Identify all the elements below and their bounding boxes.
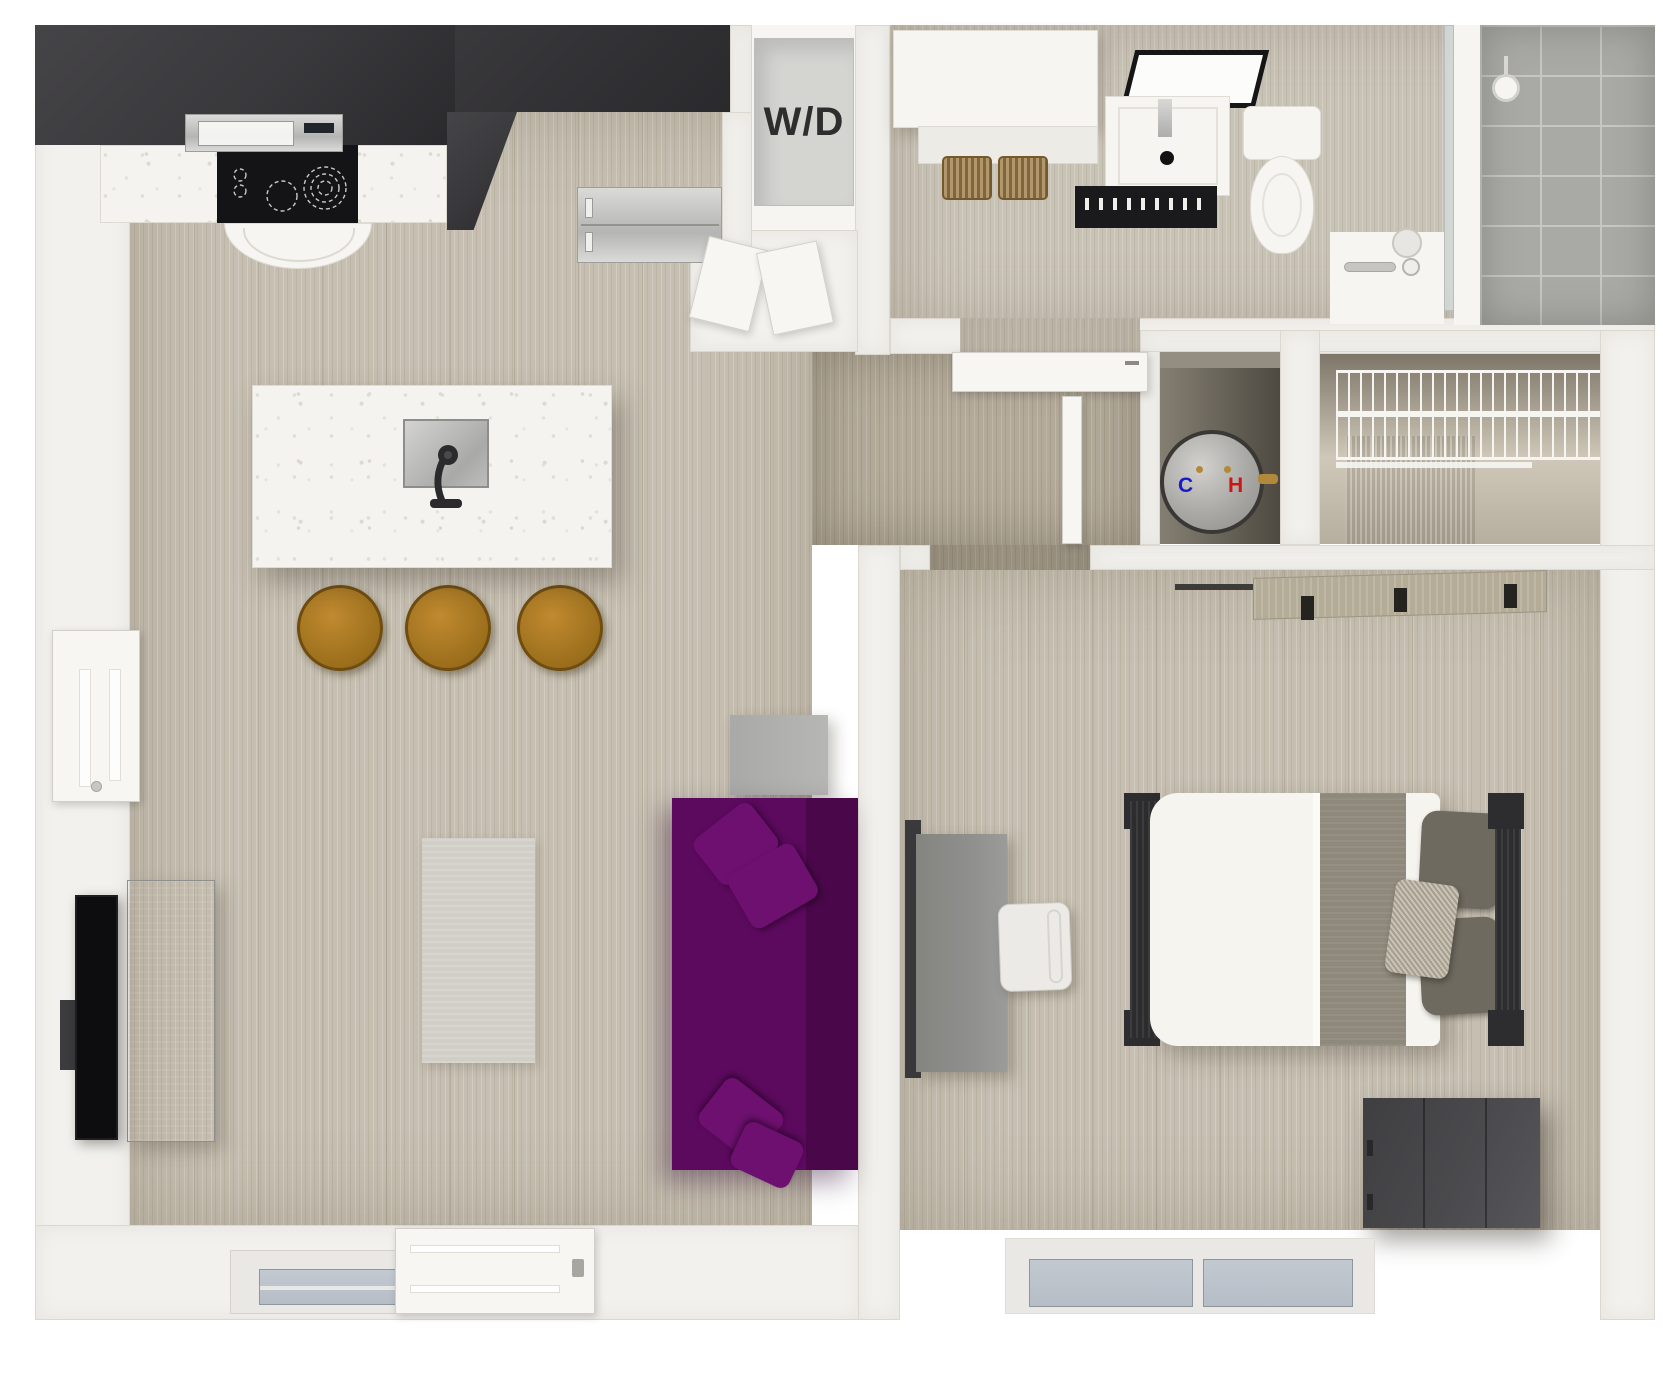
sofa-group <box>672 715 858 1170</box>
bed-group <box>1124 793 1524 1046</box>
tv <box>75 895 118 1140</box>
shower-head <box>1492 74 1520 102</box>
bathroom-vanity-sink <box>1105 96 1230 196</box>
shower-valve-bar <box>1344 262 1396 272</box>
heater-fitting-left <box>1196 466 1203 473</box>
bathroom-vanity-base <box>1075 186 1217 228</box>
heater-pipe-stub <box>1258 474 1278 484</box>
wall-heater-closet-right <box>1280 330 1320 545</box>
bathroom-door-handle <box>1125 361 1139 365</box>
sink-drain <box>1160 151 1174 165</box>
shower-drain <box>1392 228 1422 258</box>
washer-dryer-unit: W/D <box>754 38 854 206</box>
bedroom-window-glass-left <box>1029 1259 1193 1307</box>
bedroom-window-glass-right <box>1203 1259 1353 1307</box>
wall-living-bedroom <box>858 545 900 1320</box>
bathroom-door <box>952 352 1148 392</box>
refrigerator <box>577 187 722 263</box>
closet-door-glass-1 <box>79 669 91 787</box>
microwave <box>185 114 343 152</box>
entry-door-panel-1 <box>410 1245 560 1253</box>
bedroom-window <box>1005 1238 1375 1314</box>
wall-bedroom-top-b <box>1090 545 1655 570</box>
heater-fitting-right <box>1224 466 1231 473</box>
heater-closet-shelf-edge <box>1160 352 1280 368</box>
refrigerator-door-seam <box>581 224 719 226</box>
wire-shelf-upper <box>1336 370 1600 414</box>
cooktop-burners-icon <box>217 145 358 223</box>
sofa-back <box>806 798 858 1170</box>
wall-closets-top <box>1140 330 1615 352</box>
vanity-towel-slots <box>1085 198 1207 210</box>
desk-chair <box>997 902 1072 992</box>
bed-headboard <box>1495 801 1521 1038</box>
refrigerator-handle-top <box>585 198 593 218</box>
desk-group <box>905 820 1075 1078</box>
entry-door <box>395 1228 595 1314</box>
dresser-handle-1 <box>1367 1140 1373 1156</box>
wire-shelf-lower <box>1336 414 1600 460</box>
entry-door-handle <box>572 1259 584 1277</box>
entry-door-panel-2 <box>410 1285 560 1293</box>
area-rug <box>422 838 535 1063</box>
dresser <box>1363 1098 1540 1228</box>
wire-shelf-front-rail <box>1336 462 1532 468</box>
wall-bedroom-top-a <box>900 545 930 570</box>
closet-door-glass-2 <box>109 669 121 781</box>
water-heater: C H <box>1164 434 1260 530</box>
shelf-bracket-2 <box>1394 588 1407 612</box>
shelf-bracket-1 <box>1301 596 1314 620</box>
chair-back-line <box>1047 909 1064 983</box>
bed-accent-pillow <box>1384 878 1460 980</box>
bar-stool-3 <box>517 585 603 671</box>
shower-pan <box>1330 232 1444 324</box>
shower-glass-panel <box>1444 25 1454 311</box>
cold-water-label: C <box>1178 474 1193 498</box>
dresser-seam-1 <box>1423 1098 1425 1228</box>
dresser-handle-2 <box>1367 1194 1373 1210</box>
microwave-display <box>304 123 334 133</box>
sink-faucet <box>1158 99 1172 137</box>
cooktop <box>217 145 358 223</box>
media-console <box>127 880 215 1142</box>
hot-water-label: H <box>1228 474 1243 498</box>
bed-post-br <box>1488 1010 1524 1046</box>
dresser-seam-2 <box>1485 1098 1487 1228</box>
desk-top <box>916 834 1007 1072</box>
washer-dryer-label: W/D <box>755 39 853 205</box>
refrigerator-handle-bottom <box>585 232 593 252</box>
bar-stool-2 <box>405 585 491 671</box>
left-closet-door <box>52 630 140 802</box>
shelf-bracket-3 <box>1504 584 1517 608</box>
shower-back-panel <box>1454 25 1480 325</box>
island-faucet-icon <box>418 443 468 515</box>
bar-stool-1 <box>297 585 383 671</box>
bathroom-doorway <box>960 318 1140 354</box>
range-hood-arc <box>243 228 355 262</box>
bedroom-doorway <box>930 545 1090 570</box>
wall-wd-bath <box>855 25 890 355</box>
bed-post-tr <box>1488 793 1524 829</box>
toilet-bowl <box>1250 156 1314 254</box>
bathroom-counter <box>893 30 1098 128</box>
toilet-tank <box>1243 106 1321 160</box>
toilet-seat-line <box>1262 173 1302 237</box>
apartment-floor-plan: W/D C H <box>0 0 1663 1378</box>
closet-door-knob <box>91 781 102 792</box>
storage-basket-1 <box>942 156 992 200</box>
storage-basket-2 <box>998 156 1048 200</box>
heater-closet-door <box>1062 396 1082 544</box>
side-table <box>730 715 828 795</box>
wall-right <box>1600 330 1655 1320</box>
kitchen-island-group <box>252 385 612 675</box>
wall-fridge-side <box>722 112 752 252</box>
shower-knob <box>1402 258 1420 276</box>
microwave-window <box>198 121 294 146</box>
